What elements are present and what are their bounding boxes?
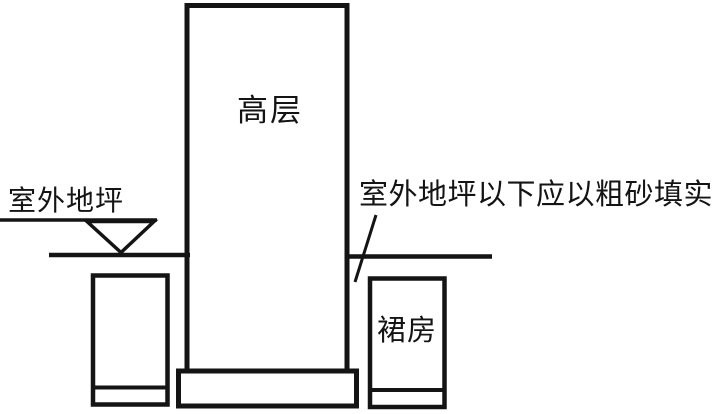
diagram-canvas: 高层 裙房 室外地坪 室外地坪以下应以粗砂填实 [0, 0, 719, 414]
tower-footing [179, 371, 357, 406]
leader-line [355, 215, 376, 282]
building-section-diagram: 高层 裙房 室外地坪 室外地坪以下应以粗砂填实 [0, 0, 719, 414]
left-podium-outline [93, 276, 168, 405]
level-symbol-triangle [87, 222, 154, 253]
tower-outline [187, 6, 347, 372]
ground-level-label: 室外地坪 [8, 185, 124, 216]
fill-note-label: 室外地坪以下应以粗砂填实 [359, 178, 713, 211]
tower-label: 高层 [237, 93, 303, 128]
podium-label: 裙房 [377, 314, 437, 347]
